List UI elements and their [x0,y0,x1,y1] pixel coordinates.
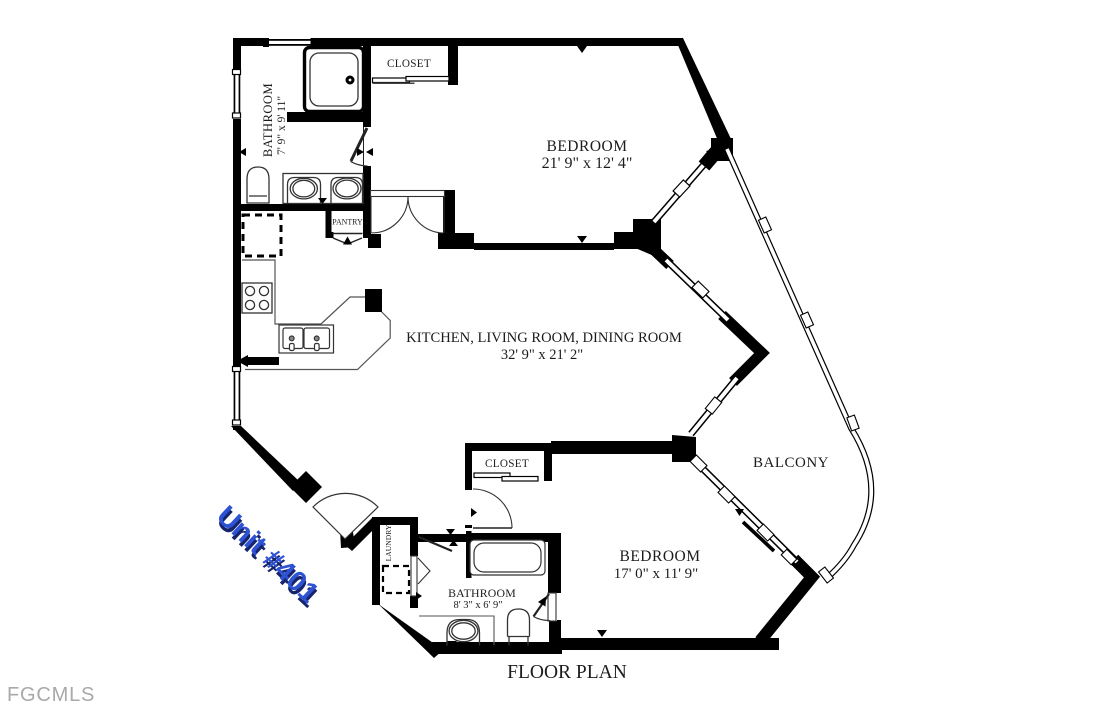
svg-text:BEDROOM: BEDROOM [546,138,627,155]
svg-text:LAUNDRY: LAUNDRY [384,524,393,561]
svg-text:BEDROOM: BEDROOM [619,548,700,565]
svg-text:21' 9" x 12' 4": 21' 9" x 12' 4" [542,155,633,172]
svg-text:CLOSET: CLOSET [387,58,431,70]
svg-text:7' 9" x 9' 11": 7' 9" x 9' 11" [276,96,288,155]
svg-text:BALCONY: BALCONY [753,455,829,471]
svg-text:KITCHEN, LIVING ROOM, DINING R: KITCHEN, LIVING ROOM, DINING ROOM [406,330,682,346]
svg-text:PANTRY: PANTRY [332,218,363,227]
svg-text:32' 9" x 21' 2": 32' 9" x 21' 2" [501,347,583,363]
svg-text:17' 0" x 11' 9": 17' 0" x 11' 9" [614,566,699,582]
svg-text:CLOSET: CLOSET [485,458,529,470]
svg-text:BATHROOM: BATHROOM [448,586,516,600]
svg-text:8' 3" x 6' 9": 8' 3" x 6' 9" [453,600,502,611]
svg-text:BATHROOM: BATHROOM [261,83,275,157]
svg-text:FGCMLS: FGCMLS [7,684,95,706]
svg-text:FLOOR PLAN: FLOOR PLAN [507,662,627,683]
